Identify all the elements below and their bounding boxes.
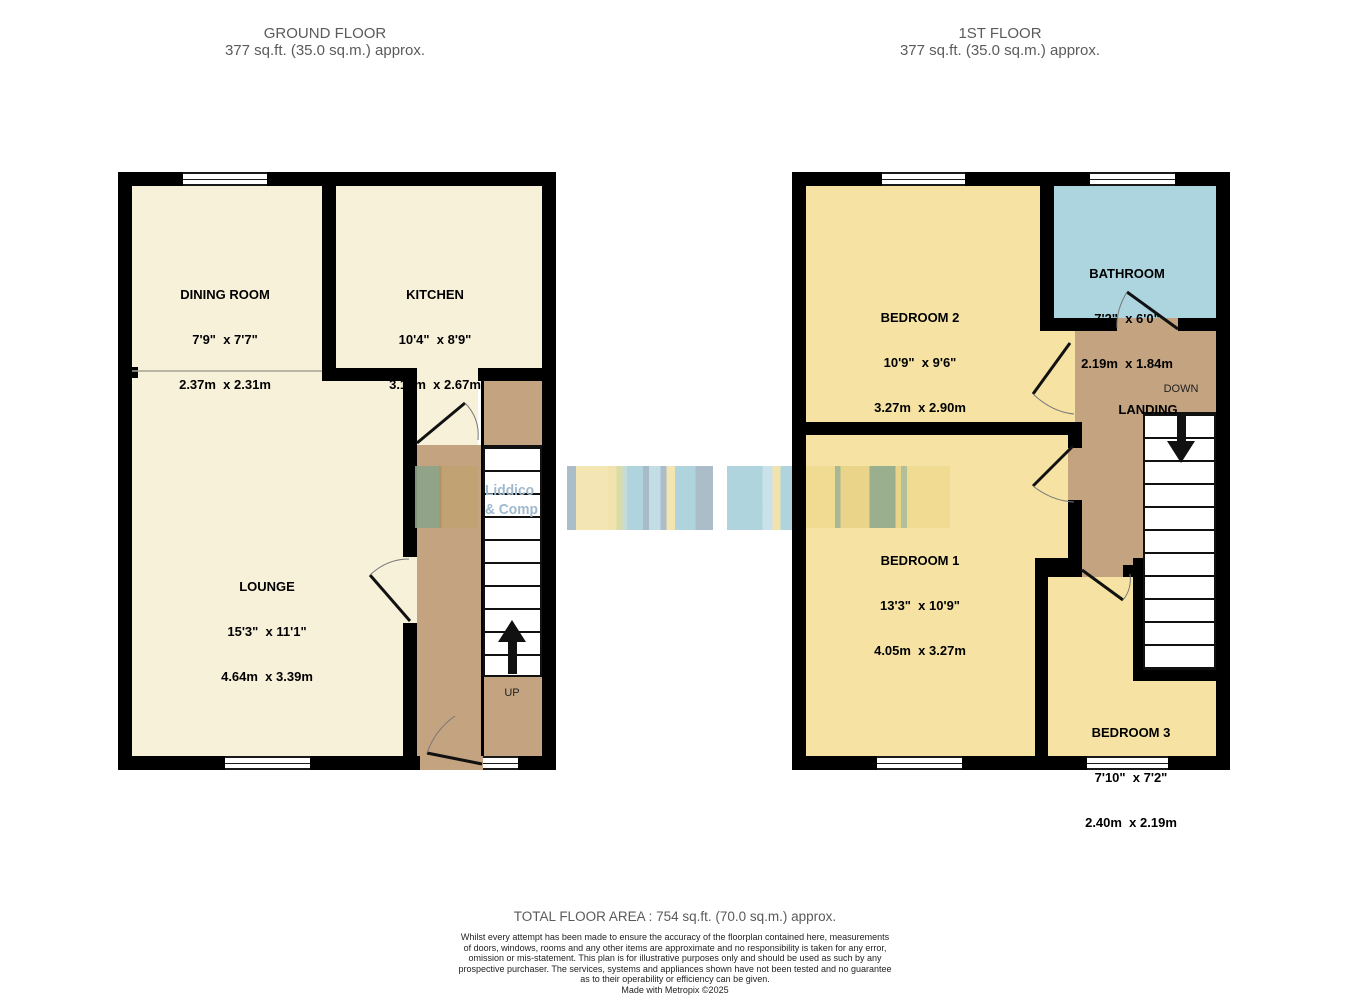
room-dims-metric: 4.05m x 3.27m	[810, 643, 1030, 658]
ground-floor-area: 377 sq.ft. (35.0 sq.m.) approx.	[225, 42, 425, 59]
watermark-line2: & Compa	[485, 500, 537, 519]
first-floor-title-block: 1ST FLOOR 377 sq.ft. (35.0 sq.m.) approx…	[900, 25, 1100, 59]
metropix-credit: Made with Metropix ©2025	[458, 985, 891, 996]
room-dims-imperial: 13'3" x 10'9"	[810, 598, 1030, 613]
disclaimer-line: of doors, windows, rooms and any other i…	[458, 943, 891, 954]
stairs-down-label: DOWN	[1151, 383, 1211, 395]
watermark-stripes	[727, 466, 792, 530]
first-floor-area: 377 sq.ft. (35.0 sq.m.) approx.	[900, 42, 1100, 59]
room-name: KITCHEN	[325, 287, 545, 302]
watermark-stripes	[567, 466, 713, 530]
watermark-stripes	[806, 466, 950, 528]
room-label-bathroom: BATHROOM 7'2" x 6'0" 2.19m x 1.84m	[1017, 236, 1237, 401]
room-name: BATHROOM	[1017, 266, 1237, 281]
room-dims-imperial: 7'10" x 7'2"	[1021, 770, 1241, 785]
watermark-line1: Liddico	[485, 481, 537, 500]
room-name: DINING ROOM	[115, 287, 335, 302]
room-dims-metric: 3.14m x 2.67m	[325, 377, 545, 392]
room-label-bedroom3: BEDROOM 3 7'10" x 7'2" 2.40m x 2.19m	[1021, 695, 1241, 860]
room-name: LOUNGE	[157, 579, 377, 594]
room-label-dining: DINING ROOM 7'9" x 7'7" 2.37m x 2.31m	[115, 257, 335, 422]
bedroom1-door-arc	[1033, 486, 1074, 502]
up-arrow-head	[498, 620, 526, 642]
room-dims-imperial: 10'4" x 8'9"	[325, 332, 545, 347]
room-dims-metric: 3.27m x 2.90m	[810, 400, 1030, 415]
room-label-bedroom1: BEDROOM 1 13'3" x 10'9" 4.05m x 3.27m	[810, 523, 1030, 688]
room-dims-imperial: 15'3" x 11'1"	[157, 624, 377, 639]
entrance-door-arc	[427, 716, 455, 753]
watermark-stripes	[415, 466, 478, 528]
down-arrow-stem	[1177, 413, 1186, 441]
room-dims-metric: 2.19m x 1.84m	[1017, 356, 1237, 371]
room-dims-metric: 2.37m x 2.31m	[115, 377, 335, 392]
room-dims-imperial: 7'9" x 7'7"	[115, 332, 335, 347]
first-floor-title: 1ST FLOOR	[900, 25, 1100, 42]
room-label-bedroom2: BEDROOM 2 10'9" x 9'6" 3.27m x 2.90m	[810, 280, 1030, 445]
entrance-door-leaf	[427, 753, 482, 764]
ground-floor-title: GROUND FLOOR	[225, 25, 425, 42]
room-name: BEDROOM 1	[810, 553, 1030, 568]
room-name: BEDROOM 2	[810, 310, 1030, 325]
bedroom1-door-leaf	[1033, 446, 1073, 486]
floorplan-canvas: GROUND FLOOR 377 sq.ft. (35.0 sq.m.) app…	[0, 0, 1350, 998]
ground-floor-title-block: GROUND FLOOR 377 sq.ft. (35.0 sq.m.) app…	[225, 25, 425, 59]
down-arrow-head	[1167, 441, 1195, 463]
landing-label: LANDING	[1103, 402, 1193, 417]
total-floor-area: TOTAL FLOOR AREA : 754 sq.ft. (70.0 sq.m…	[514, 909, 836, 924]
disclaimer-line: Whilst every attempt has been made to en…	[458, 932, 891, 943]
room-dims-imperial: 10'9" x 9'6"	[810, 355, 1030, 370]
room-dims-metric: 2.40m x 2.19m	[1021, 815, 1241, 830]
disclaimer-line: as to their operability or efficiency ca…	[458, 974, 891, 985]
room-label-lounge: LOUNGE 15'3" x 11'1" 4.64m x 3.39m	[157, 549, 377, 714]
watermark-logo-text: Liddico & Compa	[485, 481, 537, 527]
room-name: BEDROOM 3	[1021, 725, 1241, 740]
room-dims-imperial: 7'2" x 6'0"	[1017, 311, 1237, 326]
ground-floor-plan: DINING ROOM 7'9" x 7'7" 2.37m x 2.31m KI…	[118, 172, 556, 770]
bedroom3-door-arc	[1123, 574, 1130, 600]
disclaimer: Whilst every attempt has been made to en…	[458, 932, 891, 995]
room-dims-metric: 4.64m x 3.39m	[157, 669, 377, 684]
room-label-kitchen: KITCHEN 10'4" x 8'9" 3.14m x 2.67m	[325, 257, 545, 422]
disclaimer-line: omission or mis-statement. This plan is …	[458, 953, 891, 964]
up-arrow-stem	[508, 640, 517, 674]
disclaimer-line: prospective purchaser. The services, sys…	[458, 964, 891, 975]
bedroom3-door-leaf	[1082, 570, 1123, 600]
stairs-up-label: UP	[482, 687, 542, 699]
